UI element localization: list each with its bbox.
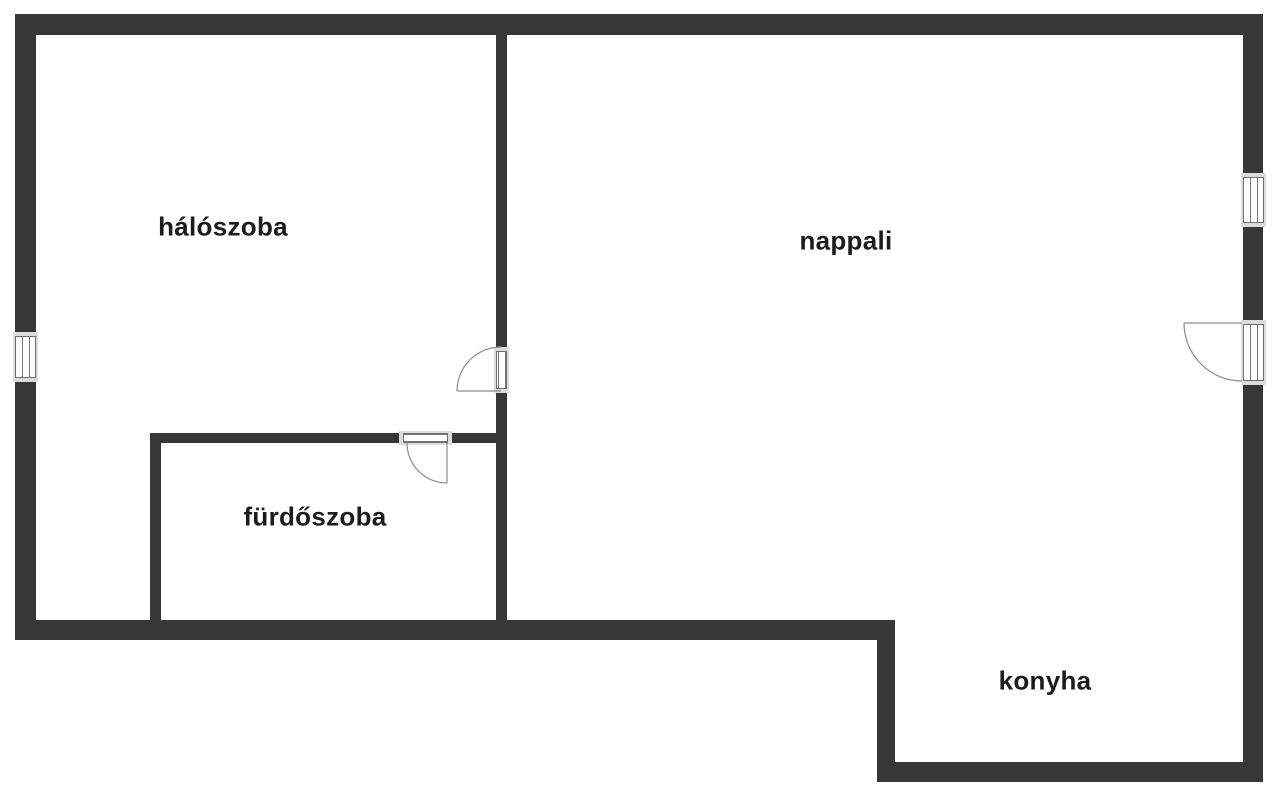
window-glazing-lines xyxy=(1250,178,1258,222)
door-panel-inner xyxy=(496,351,507,389)
door-bathroom-swing-arc xyxy=(407,443,447,483)
wall-bathroom-left xyxy=(150,433,161,640)
door-panel-bedroom-living xyxy=(494,347,509,393)
wall-left-upper xyxy=(15,14,36,332)
window-right-wall xyxy=(1241,173,1266,227)
door-living-right-swing-arc xyxy=(1184,323,1242,381)
wall-right-upper xyxy=(1243,14,1263,173)
wall-bathroom-top-right xyxy=(450,433,507,443)
door-panel-living-right xyxy=(1241,320,1266,385)
room-label-konyha: konyha xyxy=(999,666,1092,697)
room-label-haloszoba: hálószoba xyxy=(158,212,288,243)
window-glazing-lines xyxy=(22,337,30,377)
room-label-nappali: nappali xyxy=(799,226,892,257)
wall-kitchen-step xyxy=(877,620,895,782)
window-pane xyxy=(1243,177,1264,223)
wall-right-middle xyxy=(1243,227,1263,320)
floor-plan: hálószoba nappali fürdőszoba konyha xyxy=(0,0,1280,797)
wall-top xyxy=(15,14,1263,35)
wall-bottom-kitchen xyxy=(877,762,1263,782)
window-left-wall xyxy=(13,332,38,382)
door-panel-lines xyxy=(498,352,506,388)
wall-right-lower xyxy=(1243,385,1263,782)
door-panel-lines xyxy=(404,434,447,442)
wall-divider-upper xyxy=(496,35,507,347)
wall-left-lower xyxy=(15,382,36,640)
wall-bathroom-top-left xyxy=(150,433,401,443)
wall-bottom-main xyxy=(15,620,895,640)
wall-divider-lower xyxy=(496,393,507,640)
door-panel-bathroom xyxy=(399,431,452,445)
window-pane xyxy=(15,336,36,378)
door-panel-inner xyxy=(403,433,448,443)
room-label-furdoszoba: fürdőszoba xyxy=(243,502,386,533)
door-panel-lines xyxy=(1250,325,1258,380)
door-panel-inner xyxy=(1243,324,1264,381)
